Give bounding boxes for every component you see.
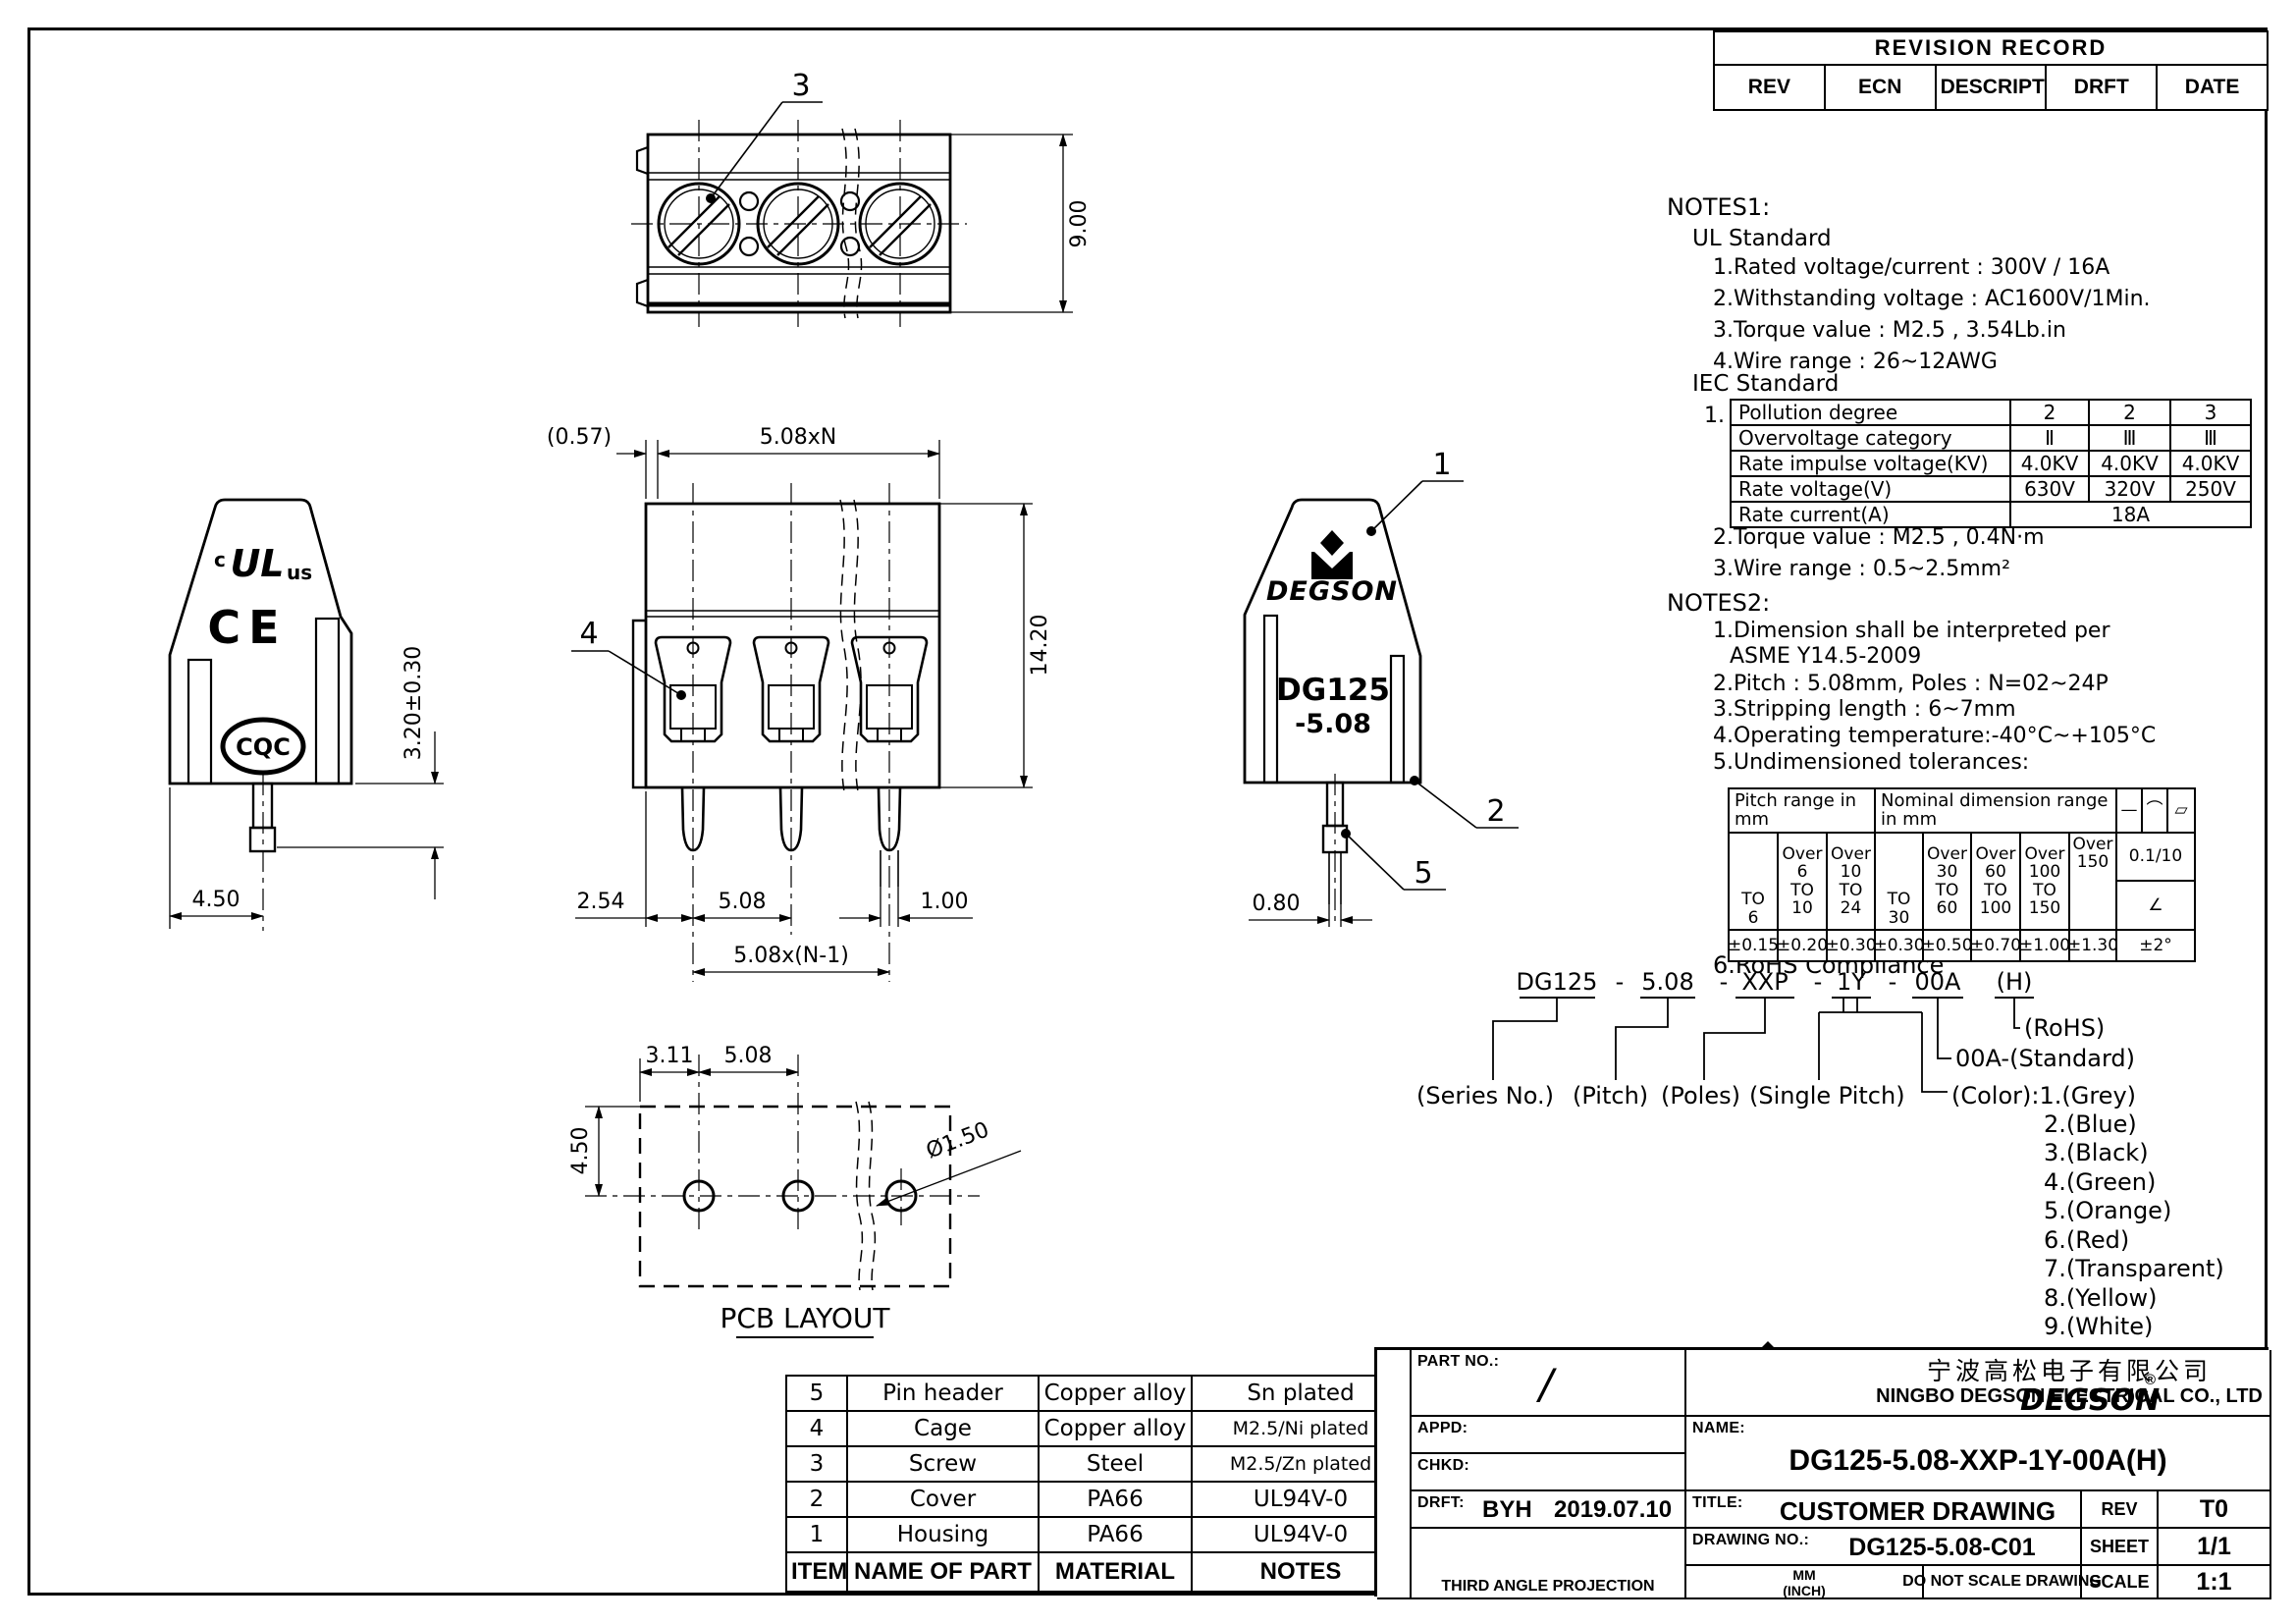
drawing-no-cell: DRAWING NO.: DG125-5.08-C01 <box>1686 1529 2082 1566</box>
part-material: Copper alloy <box>1039 1376 1192 1411</box>
drft-label: DRFT: <box>1417 1494 1465 1512</box>
part-no-value: / <box>1539 1360 1553 1408</box>
iec-note-3: 3.Wire range : 0.5~2.5mm² <box>1713 558 2010 581</box>
revision-col-drft: DRFT <box>2046 65 2157 110</box>
ul-standard-heading: UL Standard <box>1692 227 1832 251</box>
part-material: Steel <box>1039 1446 1192 1482</box>
iec-cell: 320V <box>2089 476 2170 502</box>
tolerance-value: ±0.30 <box>1828 931 1876 960</box>
chkd-cell: CHKD: <box>1412 1454 1686 1491</box>
part-name: Screw <box>847 1446 1039 1482</box>
table-row: 2 Cover PA66 UL94V-0 <box>786 1482 1410 1517</box>
part-name: Housing <box>847 1517 1039 1552</box>
angle-symbol: ∠ <box>2117 882 2194 931</box>
iec-cell: 4.0KV <box>2089 451 2170 476</box>
range-cell: Over 100 TO 150 <box>2021 834 2070 931</box>
scale-label-cell: SCALE <box>2082 1566 2159 1599</box>
drft-date: 2019.07.10 <box>1554 1496 1672 1524</box>
title-cell: TITLE: CUSTOMER DRAWING <box>1686 1491 2082 1529</box>
iec-row-label: Overvoltage category <box>1731 425 2010 451</box>
notes2-item-3: 3.Stripping length : 6~7mm <box>1713 698 2016 722</box>
notes2-item-2: 2.Pitch : 5.08mm, Poles : N=02~24P <box>1713 673 2109 696</box>
range-cell: TO 6 <box>1730 834 1779 931</box>
appd-label: APPD: <box>1417 1420 1468 1437</box>
tolerance-table: Pitch range in mm Nominal dimension rang… <box>1728 787 2196 962</box>
revision-col-date: DATE <box>2157 65 2268 110</box>
revision-record-table: REVISION RECORD REV ECN DESCRIPTION DRFT… <box>1713 30 2269 111</box>
drawing-sheet: 9.00 3 <box>0 0 2296 1624</box>
part-no-cell: PART NO.: / <box>1412 1350 1686 1417</box>
table-row: 1 Housing PA66 UL94V-0 <box>786 1517 1410 1552</box>
tolerance-value: ±0.15 <box>1730 931 1779 960</box>
sheet-value-cell: 1/1 <box>2159 1529 2271 1566</box>
iec-cell: 4.0KV <box>2170 451 2251 476</box>
notes2-item-1b: ASME Y14.5-2009 <box>1730 645 1921 669</box>
range-cell: Over 6 TO 10 <box>1779 834 1828 931</box>
part-item: 2 <box>786 1482 847 1517</box>
part-item: 5 <box>786 1376 847 1411</box>
iec-row-label: Pollution degree <box>1731 400 2010 425</box>
tolerance-value: ±0.70 <box>1972 931 2021 960</box>
parts-col-item: ITEM <box>786 1552 847 1592</box>
scale-value-cell: 1:1 <box>2159 1566 2271 1599</box>
part-item: 3 <box>786 1446 847 1482</box>
drawing-no-label: DRAWING NO.: <box>1692 1532 1809 1549</box>
notes2-item-4: 4.Operating temperature:-40°C~+105°C <box>1713 725 2156 748</box>
iec-standard-heading: IEC Standard <box>1692 372 1839 397</box>
do-not-scale-note: DO NOT SCALE DRAWING <box>1924 1566 2082 1599</box>
tolerance-value: ±1.00 <box>2021 931 2070 960</box>
part-material: PA66 <box>1039 1482 1192 1517</box>
revision-record-title: REVISION RECORD <box>1714 31 2268 65</box>
name-label: NAME: <box>1692 1420 1745 1437</box>
iec-item-number: 1. <box>1704 405 1725 428</box>
part-item: 4 <box>786 1411 847 1446</box>
name-cell: NAME: DG125-5.08-XXP-1Y-00A(H) <box>1686 1417 2271 1491</box>
part-name: Cage <box>847 1411 1039 1446</box>
revision-col-ecn: ECN <box>1825 65 1936 110</box>
units-inch-label: (INCH) <box>1686 1583 1922 1598</box>
iec-row-label: Rate voltage(V) <box>1731 476 2010 502</box>
iec-row-label: Rate impulse voltage(KV) <box>1731 451 2010 476</box>
iec-cell: 2 <box>2010 400 2089 425</box>
company-cell: DEGSON ® 宁波高松电子有限公司 NINGBO DEGSON ELECTR… <box>1686 1350 2271 1417</box>
tolerance-angle-value: ±2° <box>2117 931 2194 960</box>
notes2-item-5: 5.Undimensioned tolerances: <box>1713 751 2029 775</box>
iec-ratings-table: Pollution degree 2 2 3 Overvoltage categ… <box>1730 399 2252 528</box>
range-cell: Over 150 <box>2070 834 2117 931</box>
drawing-no-value: DG125-5.08-C01 <box>1804 1534 2080 1562</box>
drft-cell: DRFT: BYH 2019.07.10 <box>1412 1491 1686 1529</box>
rev-label-cell: REV <box>2082 1491 2159 1529</box>
iec-note-2: 2.Torque value : M2.5 , 0.4N·m <box>1713 526 2045 550</box>
notes2-heading: NOTES2: <box>1667 590 1770 616</box>
revision-col-rev: REV <box>1714 65 1825 110</box>
rev-value-cell: T0 <box>2159 1491 2271 1529</box>
units-cell: MM (INCH) <box>1686 1566 1924 1599</box>
part-name: Pin header <box>847 1376 1039 1411</box>
ul-note-2: 2.Withstanding voltage : AC1600V/1Min. <box>1713 288 2151 311</box>
part-material: PA66 <box>1039 1517 1192 1552</box>
company-name-cn: 宁波高松电子有限公司 <box>1873 1352 2266 1387</box>
iec-cell: 250V <box>2170 476 2251 502</box>
revision-col-description: DESCRIPTION <box>1936 65 2047 110</box>
iec-current-value: 18A <box>2010 502 2251 527</box>
parallelogram-symbol: ▱ <box>2168 789 2194 834</box>
iec-cell: 4.0KV <box>2010 451 2089 476</box>
arc-symbol: ⌒ <box>2143 789 2168 834</box>
units-mm-label: MM <box>1686 1567 1922 1583</box>
table-row: 4 Cage Copper alloy M2.5/Ni plated <box>786 1411 1410 1446</box>
parts-col-material: MATERIAL <box>1039 1552 1192 1592</box>
part-material: Copper alloy <box>1039 1411 1192 1446</box>
title-value: CUSTOMER DRAWING <box>1755 1496 2080 1527</box>
appd-cell: APPD: <box>1412 1417 1686 1454</box>
range-cell: Over 30 TO 60 <box>1924 834 1972 931</box>
sheet-label-cell: SHEET <box>2082 1529 2159 1566</box>
tolerance-value: ±1.30 <box>2070 931 2117 960</box>
ul-note-3: 3.Torque value : M2.5 , 3.54Lb.in <box>1713 319 2066 343</box>
table-row: 5 Pin header Copper alloy Sn plated <box>786 1376 1410 1411</box>
tolerance-value: ±0.30 <box>1876 931 1924 960</box>
projection-label: THIRD ANGLE PROJECTION <box>1412 1578 1684 1596</box>
detached-lists-strip <box>1377 1350 1412 1599</box>
tolerance-linear: 0.1/10 <box>2117 834 2194 882</box>
iec-cell: 3 <box>2170 400 2251 425</box>
name-value: DG125-5.08-XXP-1Y-00A(H) <box>1686 1444 2269 1478</box>
title-block: PART NO.: / APPD: CHKD: DRFT: BYH 2019.0… <box>1374 1347 2269 1597</box>
projection-cell: THIRD ANGLE PROJECTION <box>1412 1529 1686 1599</box>
straightness-symbol: — <box>2117 789 2143 834</box>
iec-cell: Ⅲ <box>2170 425 2251 451</box>
company-name-en: NINGBO DEGSON ELECTRICAL CO., LTD <box>1873 1385 2266 1408</box>
drft-name: BYH <box>1482 1496 1532 1524</box>
notes2-item-1: 1.Dimension shall be interpreted per <box>1713 620 2110 643</box>
part-item: 1 <box>786 1517 847 1552</box>
iec-cell: 630V <box>2010 476 2089 502</box>
iec-row-label: Rate current(A) <box>1731 502 2010 527</box>
part-no-label: PART NO.: <box>1417 1353 1499 1371</box>
range-cell: TO 30 <box>1876 834 1924 931</box>
parts-col-name: NAME OF PART <box>847 1552 1039 1592</box>
table-row: 3 Screw Steel M2.5/Zn plated <box>786 1446 1410 1482</box>
range-cell: Over 10 TO 24 <box>1828 834 1876 931</box>
chkd-label: CHKD: <box>1417 1457 1469 1475</box>
ul-note-1: 1.Rated voltage/current : 300V / 16A <box>1713 256 2109 280</box>
iec-cell: Ⅱ <box>2010 425 2089 451</box>
tolerance-nominal-header: Nominal dimension range in mm <box>1876 789 2117 834</box>
parts-header-row: ITEM NAME OF PART MATERIAL NOTES <box>786 1552 1410 1592</box>
range-cell: Over 60 TO 100 <box>1972 834 2021 931</box>
parts-list-table: 5 Pin header Copper alloy Sn plated 4 Ca… <box>785 1375 1411 1593</box>
title-label: TITLE: <box>1692 1494 1743 1512</box>
tolerance-pitch-header: Pitch range in mm <box>1730 789 1876 834</box>
tolerance-value: ±0.50 <box>1924 931 1972 960</box>
iec-cell: 2 <box>2089 400 2170 425</box>
iec-cell: Ⅲ <box>2089 425 2170 451</box>
tolerance-value: ±0.20 <box>1779 931 1828 960</box>
part-name: Cover <box>847 1482 1039 1517</box>
notes1-heading: NOTES1: <box>1667 194 1770 220</box>
